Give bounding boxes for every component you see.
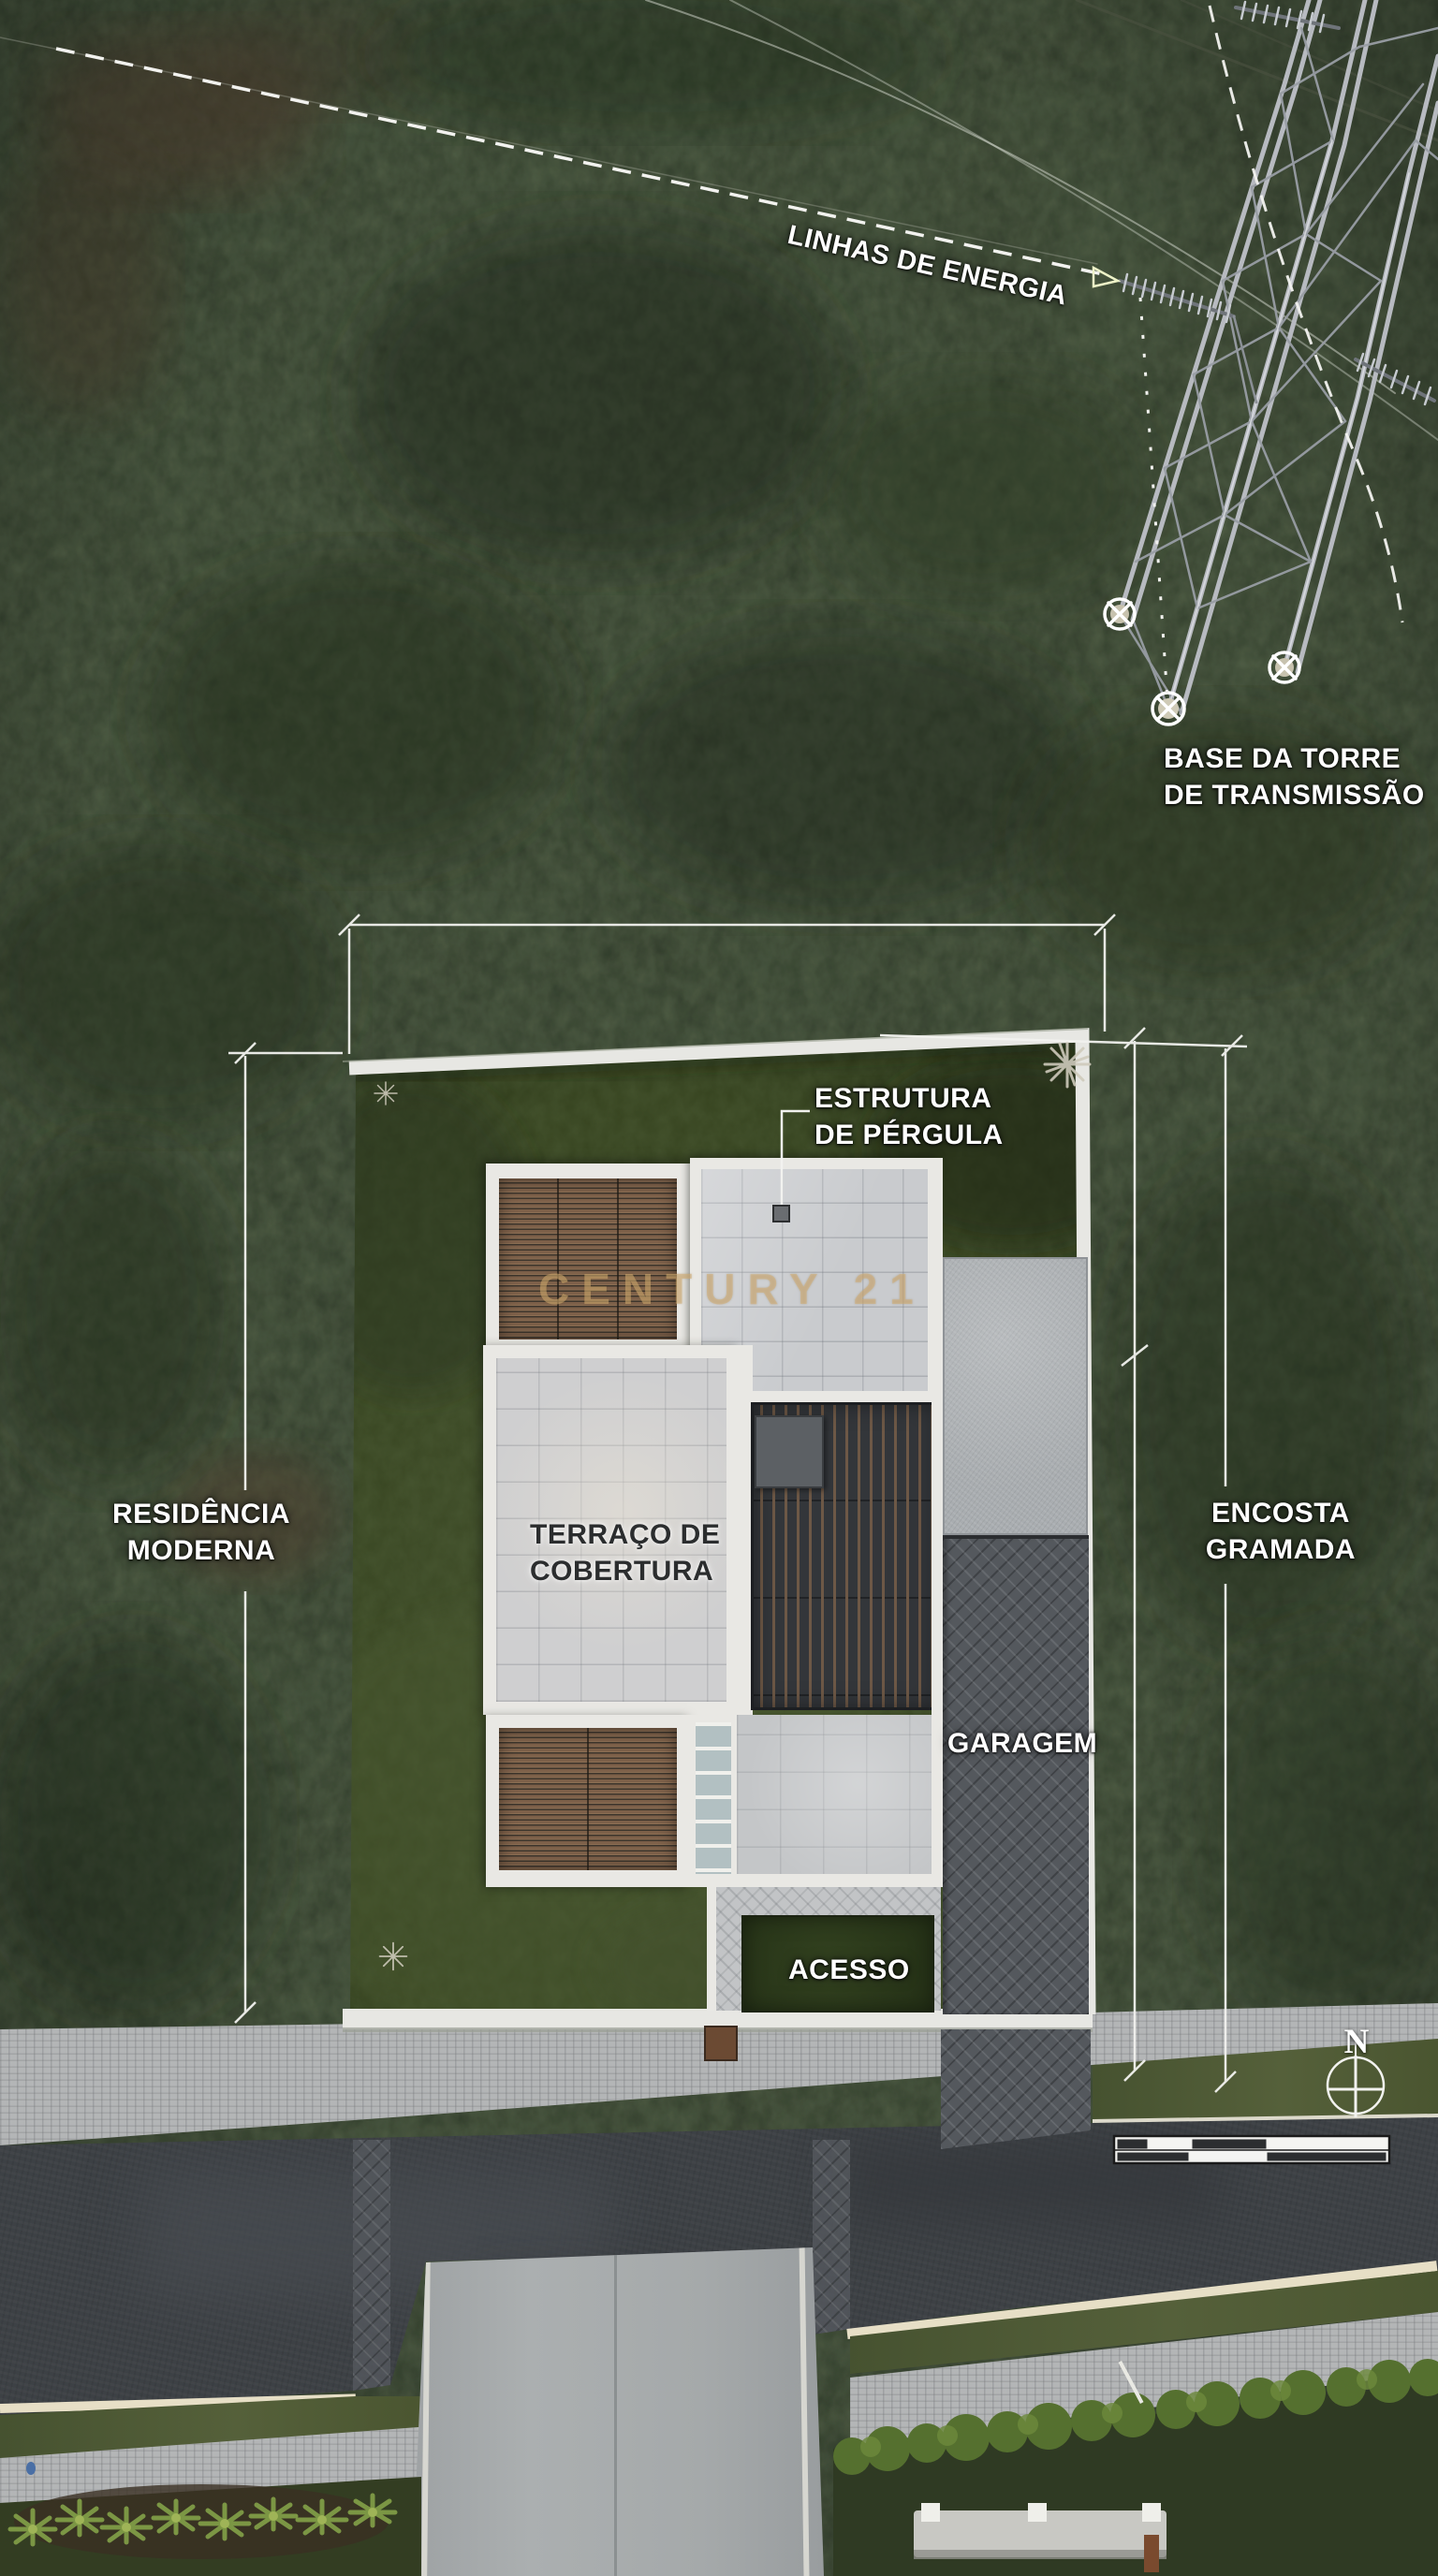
compass-north-label: N bbox=[1336, 2022, 1377, 2062]
label-pergola-structure: ESTRUTURA DE PÉRGULA bbox=[814, 1080, 1004, 1153]
label-slope-line1: ENCOSTA bbox=[1140, 1495, 1421, 1531]
label-slope-line2: GRAMADA bbox=[1140, 1531, 1421, 1568]
clearance-arc-dashed bbox=[1210, 6, 1402, 622]
scale-bar-icon bbox=[1114, 2136, 1389, 2163]
label-terrace-line2: COBERTURA bbox=[530, 1553, 720, 1589]
site-plan-photo: LINHAS DE ENERGIA BASE DA TORRE DE TRANS… bbox=[0, 0, 1438, 2576]
dimension-lines bbox=[228, 915, 1247, 2092]
label-pergola-line1: ESTRUTURA bbox=[814, 1080, 1004, 1117]
label-grassy-slope: ENCOSTA GRAMADA bbox=[1140, 1495, 1421, 1568]
label-tower-base-line2: DE TRANSMISSÃO bbox=[1164, 777, 1425, 813]
pergola-leader bbox=[773, 1111, 810, 1222]
label-residence-line2: MODERNA bbox=[61, 1532, 342, 1569]
label-pergola-line2: DE PÉRGULA bbox=[814, 1117, 1004, 1153]
label-residence-line1: RESIDÊNCIA bbox=[61, 1496, 342, 1532]
label-garage: GARAGEM bbox=[947, 1725, 1097, 1762]
tower-leader-dashed bbox=[1140, 298, 1167, 700]
label-modern-residence: RESIDÊNCIA MODERNA bbox=[61, 1496, 342, 1569]
label-tower-base: BASE DA TORRE DE TRANSMISSÃO bbox=[1164, 740, 1425, 813]
label-tower-base-line1: BASE DA TORRE bbox=[1164, 740, 1425, 777]
label-roof-terrace: TERRAÇO DE COBERTURA bbox=[530, 1516, 720, 1589]
power-line-dashed bbox=[56, 49, 1103, 274]
century21-watermark: CENTURY 21 bbox=[538, 1264, 932, 1314]
label-terrace-line1: TERRAÇO DE bbox=[530, 1516, 720, 1553]
label-access: ACESSO bbox=[788, 1952, 910, 1988]
power-line-arrow-icon bbox=[1093, 268, 1118, 286]
